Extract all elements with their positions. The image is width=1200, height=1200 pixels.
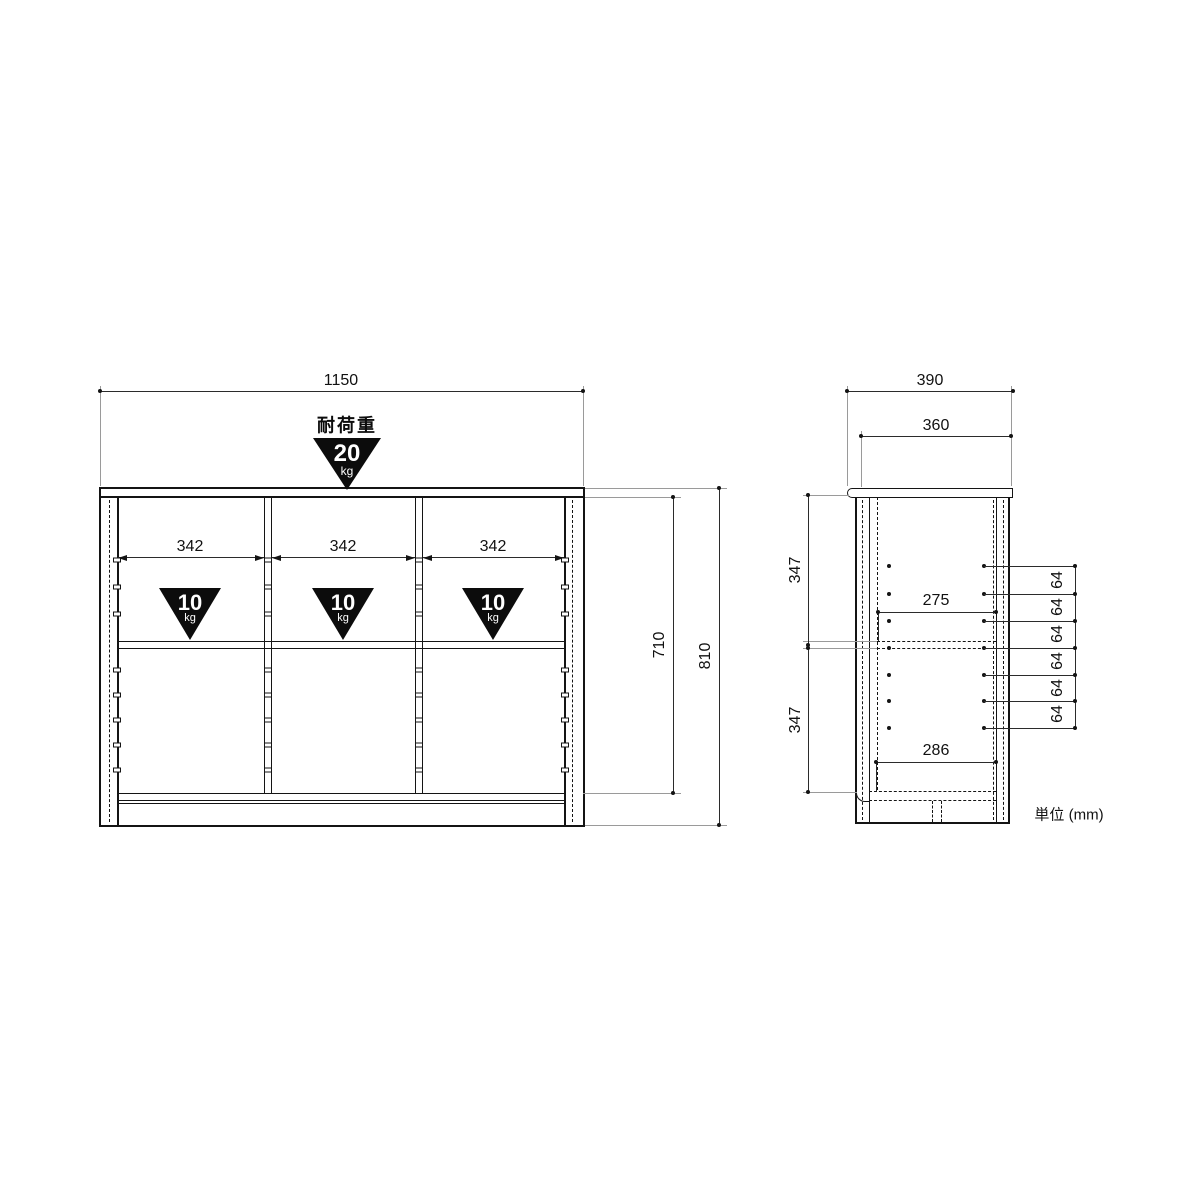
- side-back-pin-hole-dashed-line: [993, 500, 994, 820]
- side-bottom-shelf-dashed-top: [869, 791, 996, 792]
- pin-pitch-label-2: 64: [1050, 598, 1066, 616]
- pin-pitch-label-4: 64: [1050, 652, 1066, 670]
- side-top-panel: [847, 488, 1013, 498]
- dimension-end-dot: [874, 760, 878, 764]
- front-shelf-pin-tick: [561, 585, 569, 590]
- front-shelf-pin-tick: [561, 718, 569, 723]
- front-shelf-pin-tick: [561, 558, 569, 563]
- side-base-notch-left-dashed: [932, 801, 933, 822]
- dim-lower-section-height-label: 347: [788, 707, 804, 734]
- pin-pitch-end-dot: [1073, 726, 1077, 730]
- dimension-end-dot: [717, 823, 721, 827]
- front-shelf-pin-tick: [264, 668, 272, 673]
- bay-width-label-1: 342: [177, 539, 204, 555]
- front-shelf-pin-tick: [415, 558, 423, 563]
- dimension-end-dot: [1011, 389, 1015, 393]
- dimension-end-dot: [581, 389, 585, 393]
- side-front-pin-hole-dashed-line: [862, 500, 863, 820]
- pin-pitch-label-1: 64: [1050, 571, 1066, 589]
- side-front-frame-outer-line: [855, 497, 857, 824]
- dimension-end-dot: [845, 389, 849, 393]
- dimension-end-dot: [876, 610, 880, 614]
- front-shelf-pin-tick: [113, 743, 121, 748]
- front-middle-shelf: [117, 641, 565, 649]
- pin-pitch-label-3: 64: [1050, 625, 1066, 643]
- side-pin-hole-dot: [887, 564, 891, 568]
- dim-upper-section-height-label: 347: [788, 557, 804, 584]
- dim-inner-height-label: 710: [652, 632, 668, 659]
- pin-pitch-end-dot: [1073, 699, 1077, 703]
- side-back-panel-inner-line: [996, 497, 998, 824]
- dimension-end-dot: [671, 791, 675, 795]
- dimension-end-dot: [717, 486, 721, 490]
- front-shelf-pin-tick: [113, 612, 121, 617]
- pin-pitch-leader-line: [984, 621, 1075, 622]
- front-shelf-pin-tick: [415, 743, 423, 748]
- pin-pitch-end-dot: [1073, 673, 1077, 677]
- side-bottom-shelf-dashed-bottom: [869, 800, 996, 801]
- side-front-frame-inner-line: [869, 497, 871, 824]
- front-shelf-pin-tick: [415, 768, 423, 773]
- front-shelf-pin-tick: [264, 718, 272, 723]
- pin-pitch-leader-line: [984, 701, 1075, 702]
- front-shelf-pin-tick: [113, 558, 121, 563]
- front-shelf-pin-tick: [415, 718, 423, 723]
- front-shelf-pin-tick: [264, 612, 272, 617]
- side-pin-hole-dot: [887, 646, 891, 650]
- dim-upper-inner-depth-label: 275: [923, 593, 950, 609]
- pin-pitch-label-5: 64: [1050, 679, 1066, 697]
- side-pin-hole-dot: [887, 726, 891, 730]
- front-shelf-pin-tick: [561, 768, 569, 773]
- top-load-unit: kg: [313, 465, 381, 477]
- front-shelf-pin-tick: [415, 585, 423, 590]
- dim-overall-height-label: 810: [698, 643, 714, 670]
- pin-pitch-end-dot: [1073, 619, 1077, 623]
- side-base-notch-right-dashed: [941, 801, 942, 822]
- front-right-pin-hole-dashed-line: [572, 500, 573, 822]
- side-back-inner-dashed-line: [1003, 500, 1004, 820]
- front-top-panel-bottom-line: [101, 496, 583, 498]
- front-shelf-pin-tick: [264, 693, 272, 698]
- pin-pitch-leader-line: [984, 594, 1075, 595]
- pin-pitch-label-6: 64: [1050, 705, 1066, 723]
- front-shelf-pin-tick: [113, 693, 121, 698]
- pin-pitch-leader-line: [984, 675, 1075, 676]
- front-shelf-pin-tick: [264, 585, 272, 590]
- side-middle-shelf-dashed-bottom: [877, 648, 996, 649]
- front-shelf-pin-tick: [264, 768, 272, 773]
- front-shelf-pin-tick: [415, 612, 423, 617]
- side-back-panel-outer-line: [1008, 497, 1010, 824]
- pin-pitch-leader-line: [984, 648, 1075, 649]
- side-pin-hole-dot: [887, 592, 891, 596]
- front-shelf-pin-tick: [264, 558, 272, 563]
- dimension-end-dot: [806, 646, 810, 650]
- pin-pitch-end-dot: [1073, 646, 1077, 650]
- front-shelf-pin-tick: [264, 743, 272, 748]
- pin-pitch-leader-line: [984, 728, 1075, 729]
- front-shelf-pin-tick: [113, 768, 121, 773]
- pin-pitch-end-dot: [1073, 564, 1077, 568]
- dim-overall-depth-label: 390: [917, 373, 944, 389]
- dimension-end-dot: [994, 760, 998, 764]
- dimension-end-dot: [671, 495, 675, 499]
- front-shelf-pin-tick: [561, 612, 569, 617]
- front-shelf-pin-tick: [415, 693, 423, 698]
- dimension-end-dot: [859, 434, 863, 438]
- dim-top-depth-label: 360: [923, 418, 950, 434]
- drawing-canvas: 1150 耐荷重 20 kg 342 342 342 10: [0, 0, 1200, 1200]
- front-bottom-shelf: [117, 793, 565, 801]
- unit-note: 単位 (mm): [1034, 804, 1103, 825]
- bay-width-label-2: 342: [330, 539, 357, 555]
- bay-width-label-3: 342: [480, 539, 507, 555]
- top-load-badge: 20 kg: [313, 438, 381, 490]
- front-left-panel-inner-line: [117, 497, 119, 825]
- pin-pitch-end-dot: [1073, 592, 1077, 596]
- front-shelf-pin-tick: [561, 693, 569, 698]
- front-shelf-pin-tick: [113, 718, 121, 723]
- side-pin-hole-dot: [887, 699, 891, 703]
- side-pin-hole-dot: [887, 673, 891, 677]
- dim-lower-inner-depth-label: 286: [923, 743, 950, 759]
- front-right-panel-inner-line: [564, 497, 566, 825]
- front-shelf-pin-tick: [113, 585, 121, 590]
- front-shelf-pin-tick: [415, 668, 423, 673]
- top-load-caption: 耐荷重: [317, 417, 377, 436]
- side-bottom-shelf-front-round-edge: [856, 790, 870, 802]
- pin-pitch-leader-line: [984, 566, 1075, 567]
- top-load-value: 20: [313, 441, 381, 466]
- dimension-end-dot: [806, 493, 810, 497]
- front-left-pin-hole-dashed-line: [109, 500, 110, 822]
- front-shelf-pin-tick: [561, 668, 569, 673]
- side-middle-shelf-dashed-top: [877, 641, 996, 642]
- side-interior-front-dashed-line: [877, 497, 878, 790]
- side-bottom-line: [855, 822, 1009, 824]
- front-shelf-pin-tick: [561, 743, 569, 748]
- dim-overall-width-label: 1150: [324, 373, 358, 389]
- side-pin-hole-dot: [887, 619, 891, 623]
- dimension-end-dot: [98, 389, 102, 393]
- front-shelf-pin-tick: [113, 668, 121, 673]
- dimension-end-dot: [1009, 434, 1013, 438]
- front-base-top-line: [117, 803, 565, 804]
- dimension-end-dot: [994, 610, 998, 614]
- dimension-end-dot: [806, 790, 810, 794]
